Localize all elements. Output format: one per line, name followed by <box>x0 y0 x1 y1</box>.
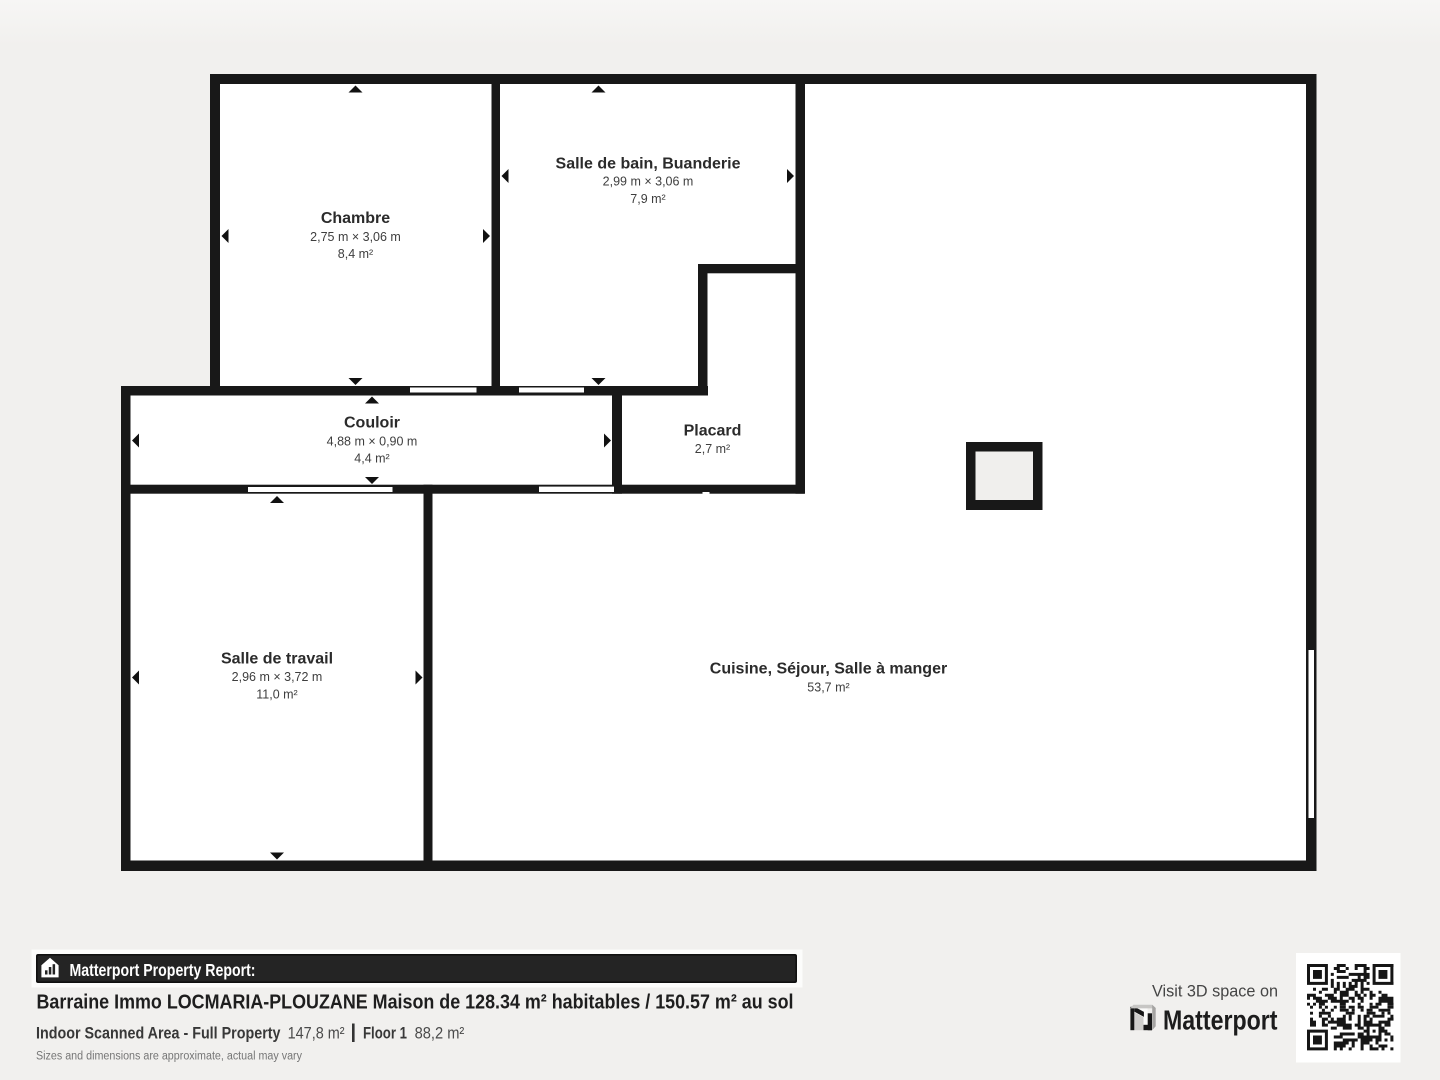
svg-text:Indoor Scanned Area - Full Pro: Indoor Scanned Area - Full Property <box>36 1024 281 1042</box>
svg-text:147,8 m²: 147,8 m² <box>288 1024 345 1042</box>
svg-text:2,96 m × 3,72 m: 2,96 m × 3,72 m <box>232 670 323 684</box>
svg-text:Placard: Placard <box>684 423 742 440</box>
svg-text:Matterport Property Report:: Matterport Property Report: <box>70 960 256 980</box>
svg-text:Barraine Immo LOCMARIA-PLOUZAN: Barraine Immo LOCMARIA-PLOUZANE Maison d… <box>37 992 794 1014</box>
svg-text:Matterport: Matterport <box>1163 1004 1278 1035</box>
svg-text:Couloir: Couloir <box>344 415 400 432</box>
svg-text:Cuisine, Séjour, Salle à mange: Cuisine, Séjour, Salle à manger <box>710 661 947 678</box>
svg-text:Floor 1: Floor 1 <box>363 1024 407 1042</box>
svg-text:Salle de travail: Salle de travail <box>221 650 333 667</box>
svg-text:4,88 m × 0,90 m: 4,88 m × 0,90 m <box>327 435 418 449</box>
svg-text:7,9 m²: 7,9 m² <box>630 192 665 206</box>
svg-text:8,4 m²: 8,4 m² <box>338 247 373 261</box>
svg-text:2,7 m²: 2,7 m² <box>695 442 730 456</box>
svg-text:4,4 m²: 4,4 m² <box>354 451 389 465</box>
svg-text:Salle de bain, Buanderie: Salle de bain, Buanderie <box>556 155 741 172</box>
svg-text:Visit 3D space on: Visit 3D space on <box>1152 982 1278 1000</box>
svg-text:53,7 m²: 53,7 m² <box>807 680 849 694</box>
svg-text:Sizes and dimensions are appro: Sizes and dimensions are approximate, ac… <box>36 1050 302 1062</box>
svg-text:88,2 m²: 88,2 m² <box>415 1024 465 1042</box>
svg-text:11,0 m²: 11,0 m² <box>256 688 297 702</box>
svg-text:2,75 m × 3,06 m: 2,75 m × 3,06 m <box>310 230 401 244</box>
svg-text:Chambre: Chambre <box>321 210 390 227</box>
svg-text:2,99 m × 3,06 m: 2,99 m × 3,06 m <box>603 175 694 189</box>
